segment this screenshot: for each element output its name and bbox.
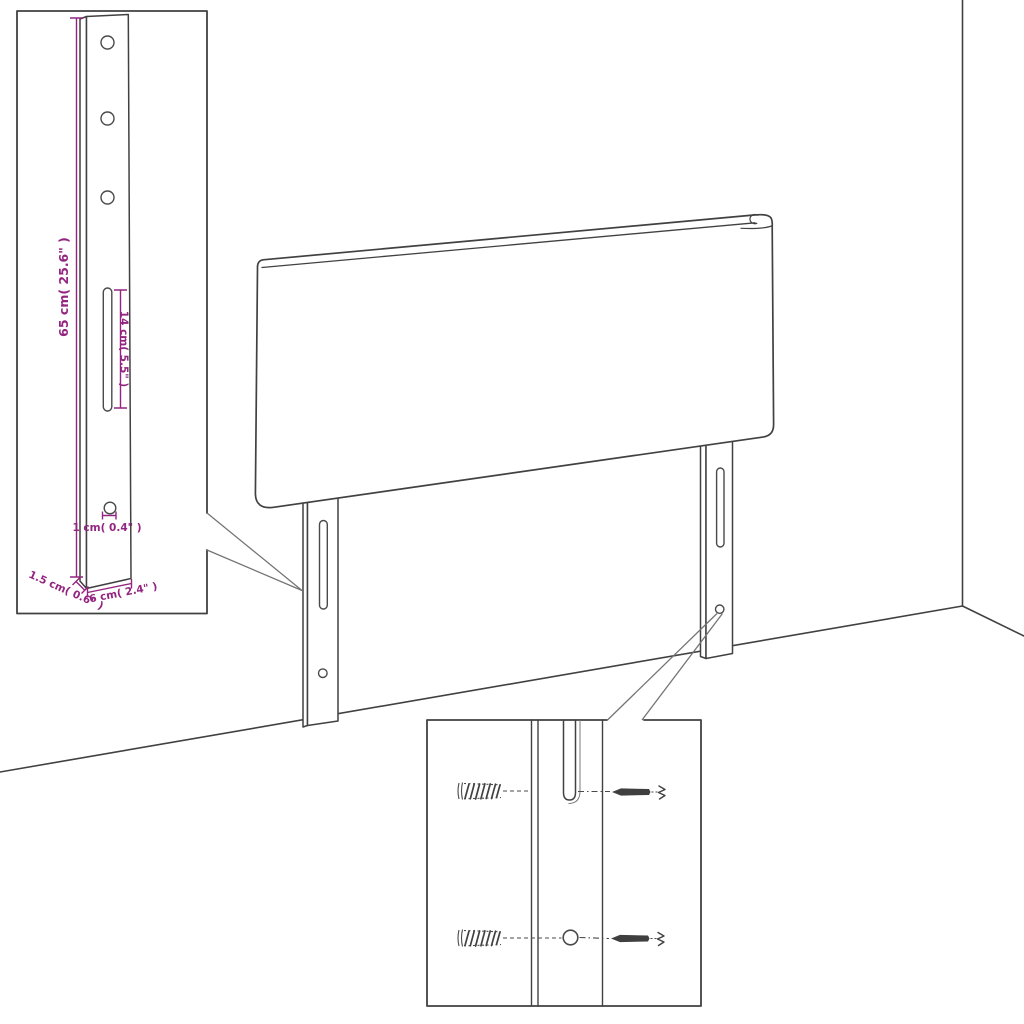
bracket-slot [103, 288, 112, 411]
wall-anchor-icon [458, 783, 501, 800]
floor-line-right [963, 606, 1024, 636]
left-leg-slot [320, 521, 328, 610]
callout-line [642, 614, 723, 721]
inset-leg-strip [532, 720, 603, 1006]
bracket-hole [101, 112, 114, 125]
hole-dimension-label: 1 cm( 0.4" ) [72, 522, 141, 534]
right-mounting-leg [701, 428, 733, 659]
panel-face [255, 215, 773, 508]
leader-dash [580, 938, 610, 939]
bracket-bottom-hole [104, 502, 116, 514]
height-dimension-label: 65 cm( 25.6" ) [56, 237, 71, 337]
wall-anchor-icon [458, 930, 501, 947]
bracket-side-face [80, 17, 87, 589]
inset-leg-hole [563, 930, 578, 945]
screw-icon [612, 786, 665, 799]
slot-dimension-label: 14 cm( 5.5" ) [118, 311, 130, 387]
callout-line [207, 550, 302, 591]
left-mounting-leg [303, 488, 338, 727]
bracket-hole [101, 191, 114, 204]
diagram-canvas: 65 cm( 25.6" ) 14 cm( 5.5" ) 1 cm( 0.4" … [0, 0, 1024, 1024]
bracket-hole [101, 36, 114, 49]
headboard-panel [255, 214, 773, 507]
callout-line [207, 513, 302, 591]
mounting-detail-inset [427, 720, 701, 1006]
right-leg-hole [716, 605, 724, 613]
callout-line [608, 614, 718, 721]
floor-line-left [0, 606, 963, 772]
inset-leg-slot [564, 720, 576, 800]
left-leg-hole [319, 669, 328, 678]
screw-icon [611, 933, 664, 946]
bracket-drawing [80, 15, 131, 589]
headboard-assembly-diagram: 65 cm( 25.6" ) 14 cm( 5.5" ) 1 cm( 0.4" … [0, 0, 1024, 1024]
right-leg-slot [717, 468, 724, 547]
